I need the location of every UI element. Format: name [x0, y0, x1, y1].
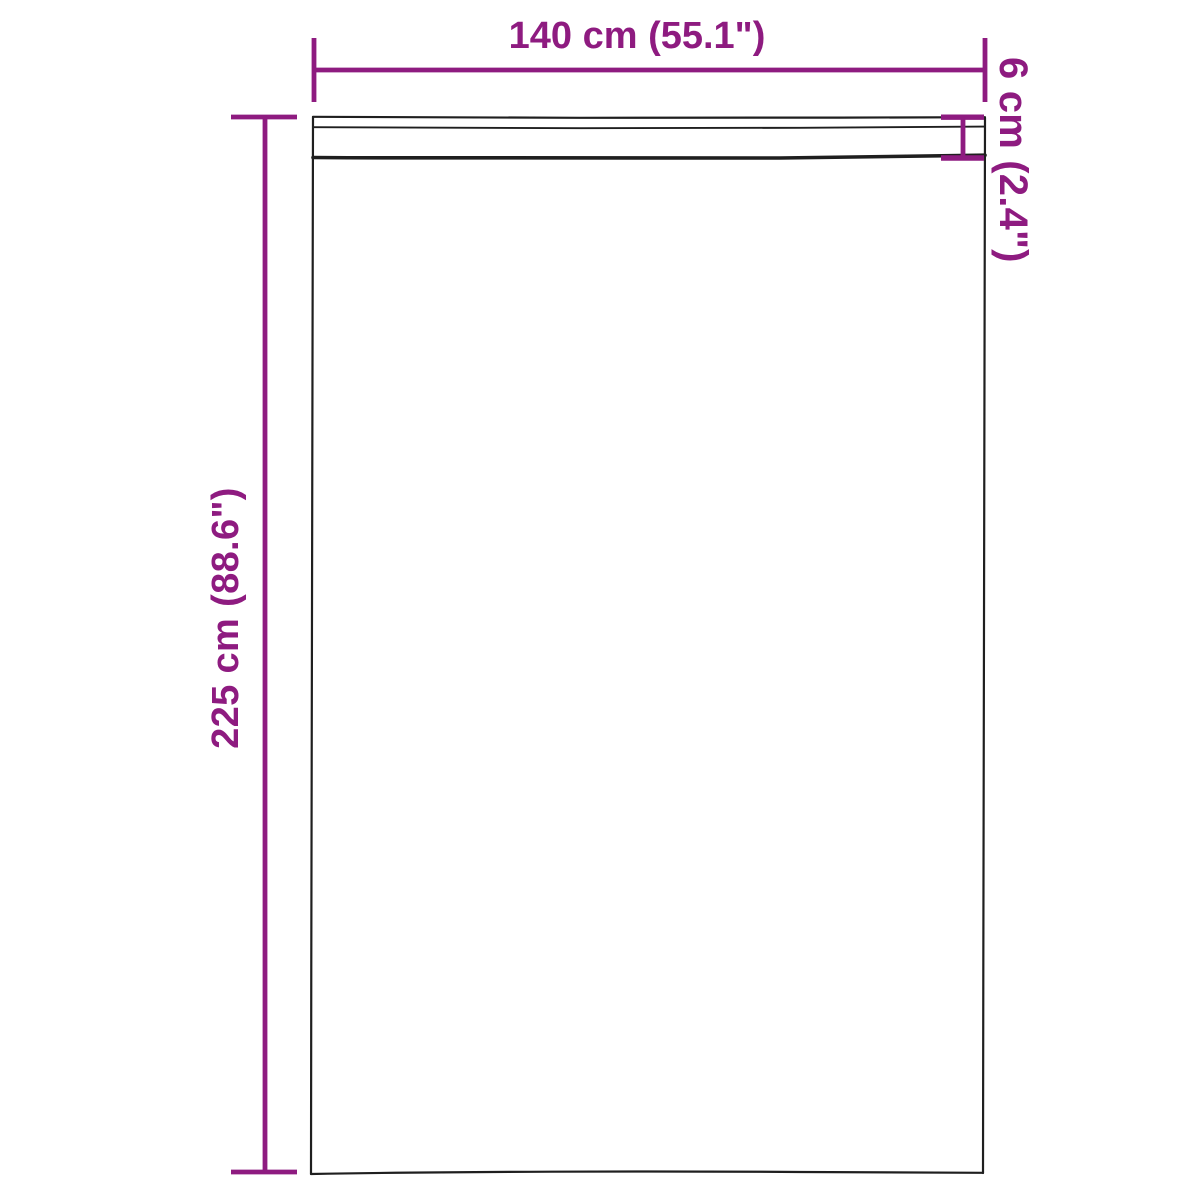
svg-text:140 cm (55.1"): 140 cm (55.1") — [509, 15, 766, 57]
svg-text:225 cm (88.6"): 225 cm (88.6") — [205, 487, 247, 749]
svg-text:6 cm (2.4"): 6 cm (2.4") — [991, 57, 1035, 263]
